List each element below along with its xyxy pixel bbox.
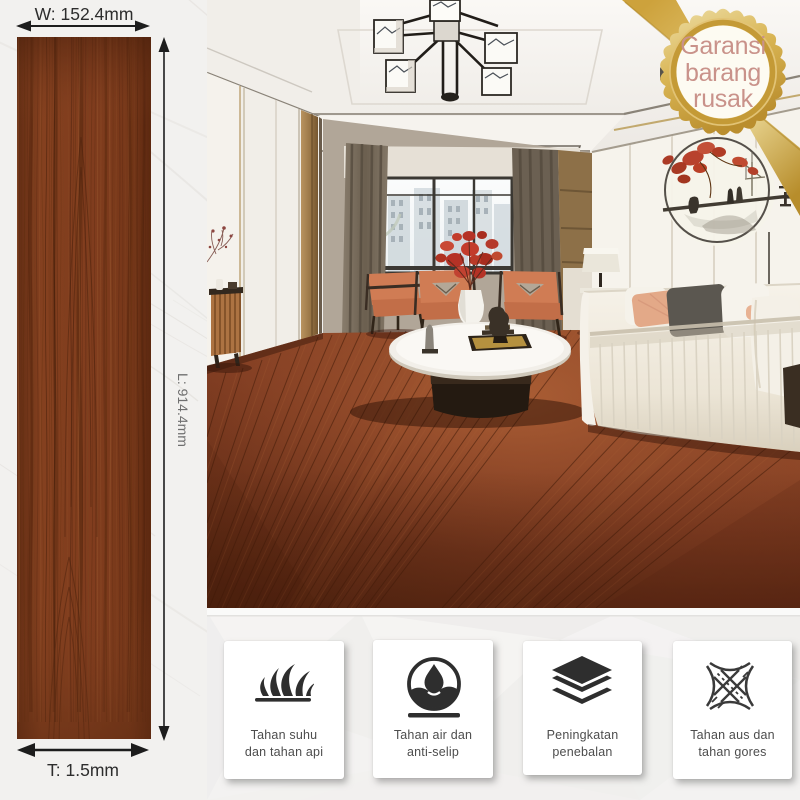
svg-text:barang: barang <box>685 59 761 87</box>
svg-text:Garansi: Garansi <box>680 32 765 60</box>
svg-text:rusak: rusak <box>693 85 753 113</box>
